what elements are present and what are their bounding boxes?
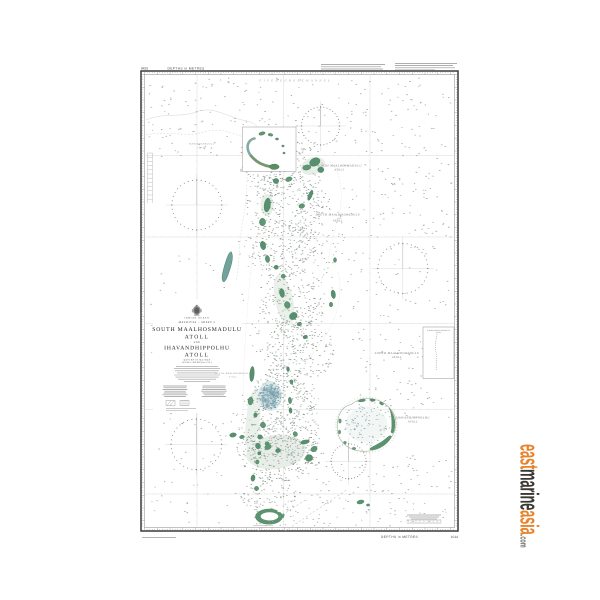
svg-text:SOUTH MAALHOSMADULU: SOUTH MAALHOSMADULU [316, 213, 361, 217]
svg-text:SOUTH MAALHOSMADULU: SOUTH MAALHOSMADULU [152, 327, 242, 333]
svg-text:ATOLL: ATOLL [332, 219, 343, 222]
svg-text:eastmarineasia: eastmarineasia [515, 444, 545, 535]
svg-text:ATOLL: ATOLL [333, 169, 344, 172]
svg-text:AND: AND [194, 341, 201, 344]
svg-text:NORTH MAALHOSMADULU: NORTH MAALHOSMADULU [316, 164, 362, 168]
svg-text:DEPTHS IN METRES: DEPTHS IN METRES [184, 358, 211, 361]
svg-text:MALDIVES – SHEET 5: MALDIVES – SHEET 5 [179, 321, 216, 324]
svg-text:ATOLL: ATOLL [391, 356, 402, 359]
svg-text:IHAVANDHIPPOLHU: IHAVANDHIPPOLHU [395, 416, 430, 420]
svg-text:ATOLL: ATOLL [436, 331, 442, 334]
svg-text:ATOLL: ATOLL [185, 353, 210, 359]
svg-text:1014: 1014 [451, 535, 459, 539]
svg-text:ATOLL: ATOLL [185, 335, 210, 341]
svg-text:ATOLL: ATOLL [228, 375, 238, 378]
svg-text:INDIAN OCEAN: INDIAN OCEAN [184, 316, 209, 319]
svg-text:8425: 8425 [141, 66, 148, 70]
svg-text:DEPTHS in METRES: DEPTHS in METRES [381, 535, 419, 539]
svg-text:ATOLL: ATOLL [407, 421, 418, 424]
svg-text:DEPTHS in METRES: DEPTHS in METRES [168, 66, 206, 70]
svg-text:IHAVANDHIPPOLHU: IHAVANDHIPPOLHU [164, 346, 230, 352]
svg-text:SOUTH MAALHOSMADULU: SOUTH MAALHOSMADULU [375, 351, 420, 355]
svg-text:MAALHOSMADULU: MAALHOSMADULU [188, 143, 215, 146]
svg-text:SOUTH MAALHOSMADULU: SOUTH MAALHOSMADULU [215, 372, 251, 375]
svg-text:(inset): (inset) [198, 146, 207, 149]
svg-text:F I V E D E G R E E C H A: F I V E D E G R E E C H A N N E L [258, 79, 330, 83]
svg-text:SCALE 1:300 000 (lat 5°15′): SCALE 1:300 000 (lat 5°15′) [182, 361, 212, 364]
svg-text:.com: .com [518, 535, 529, 548]
